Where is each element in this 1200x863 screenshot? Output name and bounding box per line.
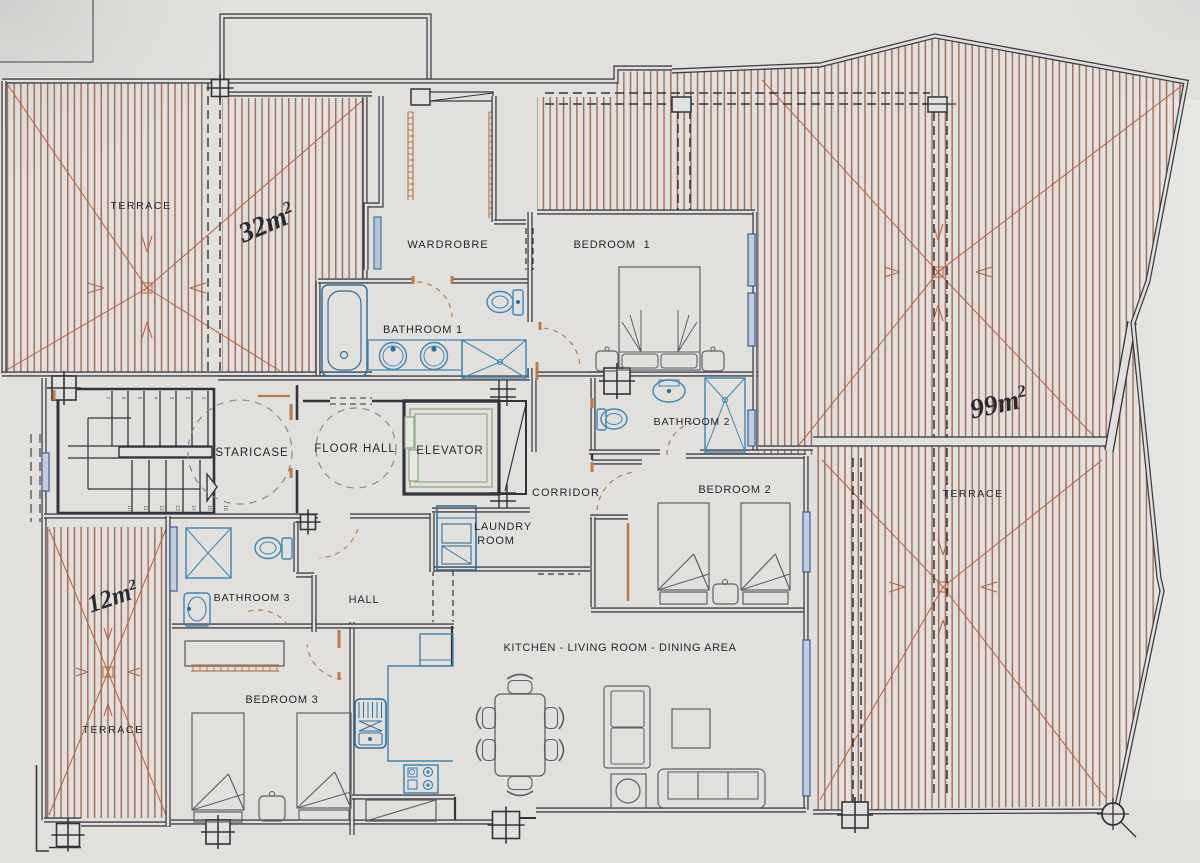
svg-text:WARDROBRE: WARDROBRE: [407, 239, 488, 251]
svg-text:KITCHEN - LIVING ROOM - DINING: KITCHEN - LIVING ROOM - DINING AREA: [503, 642, 736, 654]
svg-text:13: 13: [174, 505, 180, 511]
svg-text:ELEVATOR: ELEVATOR: [416, 445, 483, 457]
svg-text:6: 6: [120, 397, 126, 400]
svg-text:1: 1: [200, 397, 206, 400]
svg-text:2: 2: [184, 397, 190, 400]
svg-text:15: 15: [206, 505, 212, 511]
svg-text:TERRACE: TERRACE: [110, 200, 171, 212]
svg-text:HALL: HALL: [349, 594, 380, 606]
svg-text:7: 7: [104, 397, 110, 400]
svg-text:BATHROOM 2: BATHROOM 2: [654, 416, 731, 428]
svg-text:10: 10: [126, 505, 132, 511]
svg-text:16: 16: [222, 505, 228, 511]
svg-text:BEDROOM 2: BEDROOM 2: [698, 484, 771, 496]
svg-text:BEDROOM 3: BEDROOM 3: [245, 694, 318, 706]
svg-text:CORRIDOR: CORRIDOR: [532, 487, 600, 499]
svg-text:BATHROOM 1: BATHROOM 1: [383, 324, 463, 336]
svg-text:3: 3: [168, 397, 174, 400]
svg-text:STARICASE: STARICASE: [215, 447, 288, 459]
svg-text:5: 5: [136, 397, 142, 400]
svg-text:11: 11: [142, 505, 148, 510]
svg-text:BATHROOM 3: BATHROOM 3: [214, 592, 291, 604]
svg-text:BEDROOM 1: BEDROOM 1: [573, 239, 650, 251]
svg-text:LAUNDRY: LAUNDRY: [474, 521, 532, 533]
svg-text:4: 4: [152, 397, 158, 400]
svg-text:12: 12: [158, 505, 164, 511]
svg-text:TERRACE: TERRACE: [82, 724, 143, 736]
svg-text:14: 14: [190, 505, 196, 511]
svg-text:TERRACE: TERRACE: [942, 488, 1003, 500]
svg-text:ROOM: ROOM: [477, 535, 514, 547]
svg-text:FLOOR HALL: FLOOR HALL: [314, 443, 396, 455]
